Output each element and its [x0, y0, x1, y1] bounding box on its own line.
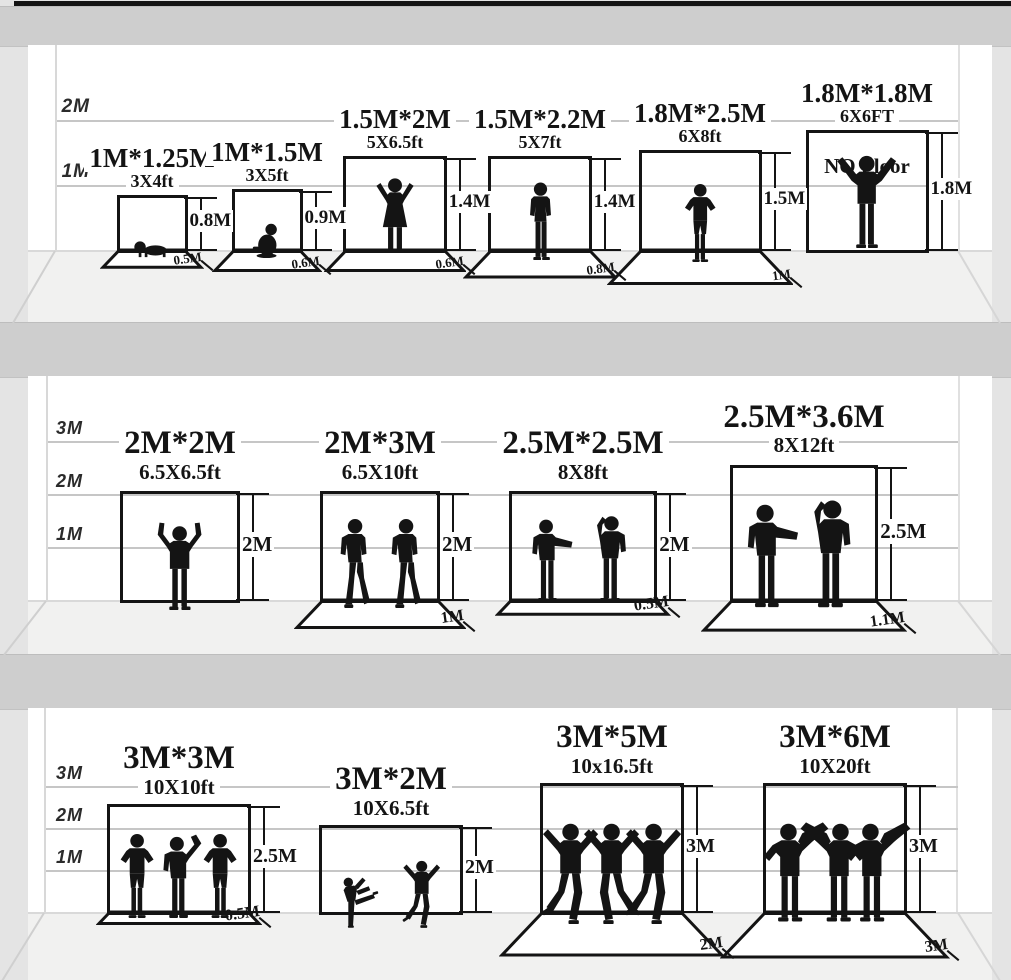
height-dimension-label: 1.4M [592, 191, 638, 213]
figure-man-presenting-icon [735, 504, 809, 610]
size-feet: 3X5ft [241, 166, 294, 185]
shelf-band-middle-1 [0, 322, 1011, 378]
figure-dancer-icon [396, 859, 447, 928]
height-dimension-label: 2M [240, 532, 274, 557]
figure-dancer-icon [615, 821, 692, 924]
figure-man-victory-icon [148, 519, 211, 610]
size-feet-line: 6X8ft [550, 127, 850, 146]
size-feet: 10X6.5ft [348, 797, 434, 819]
size-title: 2M*2M [119, 426, 241, 461]
size-title: 2M*3M [319, 426, 441, 461]
dimension-tick-bottom [925, 249, 958, 251]
height-dimension-label: 2.5M [251, 845, 299, 868]
size-feet-line: 10X20ft [685, 755, 985, 777]
size-title: 2.5M*3.6M [718, 400, 889, 435]
shelf-band-middle-2 [0, 654, 1011, 710]
size-title: 3M*6M [774, 720, 896, 755]
size-feet: 6X6FT [835, 107, 899, 126]
figure-man-hands-hips-icon [676, 184, 724, 262]
dimension-tick-bottom [874, 599, 907, 601]
size-title-line: 3M*6M [685, 720, 985, 755]
size-title: 2.5M*2.5M [497, 426, 668, 461]
backdrop-size-title-block: 3M*6M10X20ft [685, 720, 985, 777]
size-feet-line: 6X6FT [717, 107, 1011, 126]
wall-corner-line-right [958, 376, 960, 600]
size-feet: 10x16.5ft [566, 755, 658, 777]
figure-dancer-kick-icon [335, 869, 387, 928]
figure-man-walking-icon [328, 519, 381, 608]
dimension-tick-bottom [236, 599, 269, 601]
scale-label-2m: 2M [34, 96, 90, 118]
height-dimension-label: 3M [907, 835, 940, 858]
height-dimension-label: 1.8M [929, 178, 975, 200]
height-dimension-label: 2M [440, 532, 474, 557]
size-feet: 6.5X6.5ft [134, 461, 226, 483]
backdrop-size-title-block: 2.5M*3.6M8X12ft [654, 400, 954, 457]
backdrop-size-title-block: 1.8M*1.8M6X6FT [717, 79, 1011, 126]
size-feet-line: 8X12ft [654, 434, 954, 456]
figure-child-arms-up-icon [366, 172, 424, 252]
size-feet: 8X12ft [769, 434, 840, 456]
size-feet-line: 8X8ft [433, 461, 733, 483]
wall-corner-line-right [958, 45, 960, 250]
dimension-tick-bottom [758, 249, 791, 251]
height-dimension-label: 1.5M [762, 188, 808, 210]
height-dimension-label: 0.9M [303, 207, 349, 229]
size-title: 3M*2M [330, 762, 452, 797]
scale-label-2m: 2M [28, 805, 83, 826]
dimension-tick-bottom [436, 599, 469, 601]
shelf-band-top [0, 6, 1011, 47]
figure-man-listening-icon [588, 515, 640, 604]
height-dimension-label: 2M [463, 856, 496, 879]
backdrop-size-poster: 2M1M1M*1.25M3X4ft0.8M0.5M1M*1.5M3X5ft0.9… [0, 0, 1011, 980]
size-title: 3M*3M [118, 741, 240, 776]
scale-label-1m: 1M [28, 847, 83, 868]
no-floor-note: NO Floor [787, 154, 947, 179]
figure-boy-standing-icon [519, 182, 562, 260]
size-title: 1.8M*1.8M [796, 79, 938, 107]
size-title: 3M*5M [551, 720, 673, 755]
size-feet-line: 10X6.5ft [241, 797, 541, 819]
size-title-line: 1.8M*1.8M [717, 79, 1011, 107]
size-title-line: 2.5M*3.6M [654, 400, 954, 435]
scale-label-1m: 1M [28, 524, 83, 545]
height-dimension-label: 3M [684, 835, 717, 858]
figure-musician-icon [836, 821, 916, 924]
figure-man-on-phone-icon [803, 499, 868, 610]
size-feet: 10X20ft [794, 755, 875, 777]
height-dimension-label: 1.4M [447, 191, 493, 213]
figure-toddler-sitting-icon [249, 223, 284, 258]
height-dimension-label: 2M [657, 532, 691, 557]
figure-man-walking-icon [379, 519, 432, 608]
size-feet: 8X8ft [553, 461, 613, 483]
height-dimension-label: 2.5M [878, 519, 928, 544]
size-feet: 10X10ft [138, 776, 219, 798]
height-dimension-label: 0.8M [188, 210, 234, 232]
figure-man-gesturing-icon [522, 519, 582, 604]
dimension-tick-bottom [459, 911, 492, 913]
size-feet: 6.5X10ft [337, 461, 423, 483]
size-feet: 6X8ft [674, 127, 727, 146]
